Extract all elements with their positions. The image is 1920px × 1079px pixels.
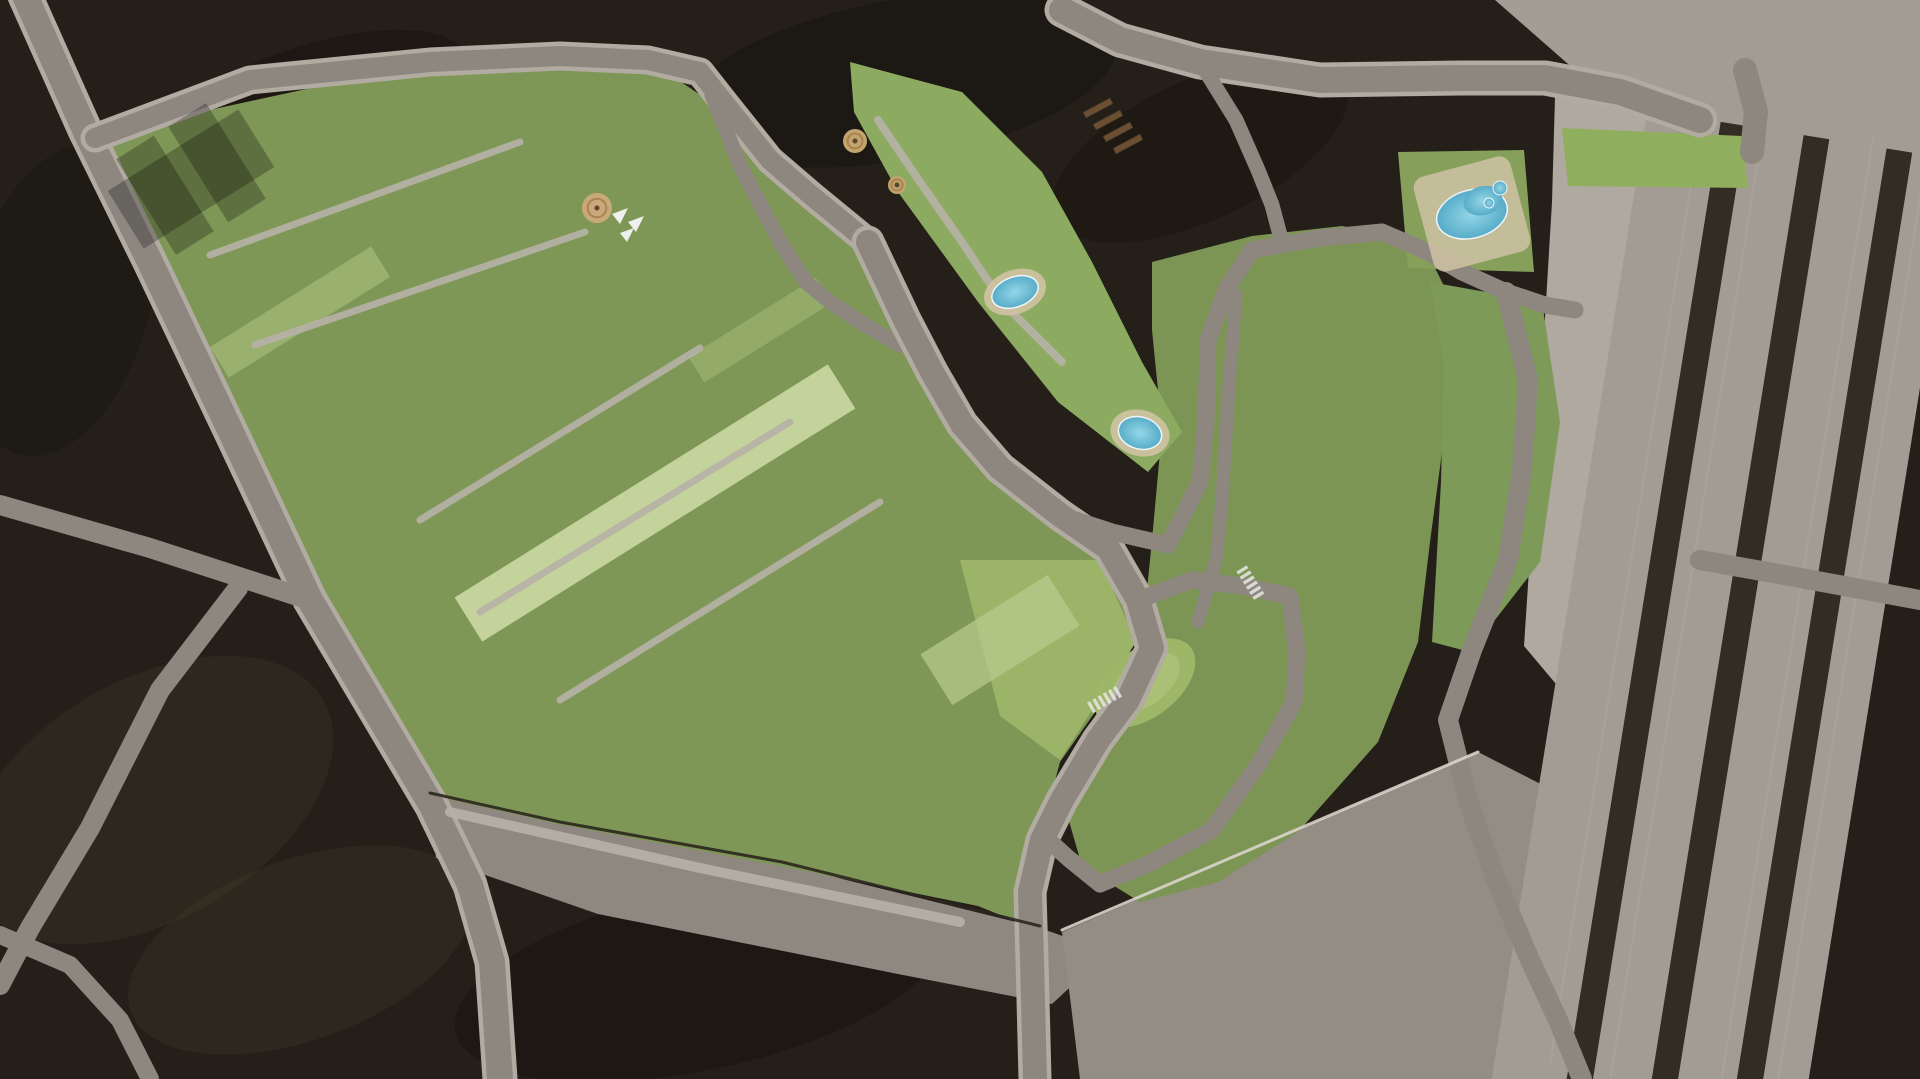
playground-center — [595, 206, 600, 211]
aerial-scene — [0, 0, 1920, 1079]
masterplan-render — [0, 0, 1920, 1079]
kids-pool — [1493, 181, 1507, 195]
green-clawn — [1562, 128, 1748, 188]
playground-center — [895, 183, 900, 188]
playground-center — [853, 139, 858, 144]
kids-pool — [1484, 198, 1494, 208]
